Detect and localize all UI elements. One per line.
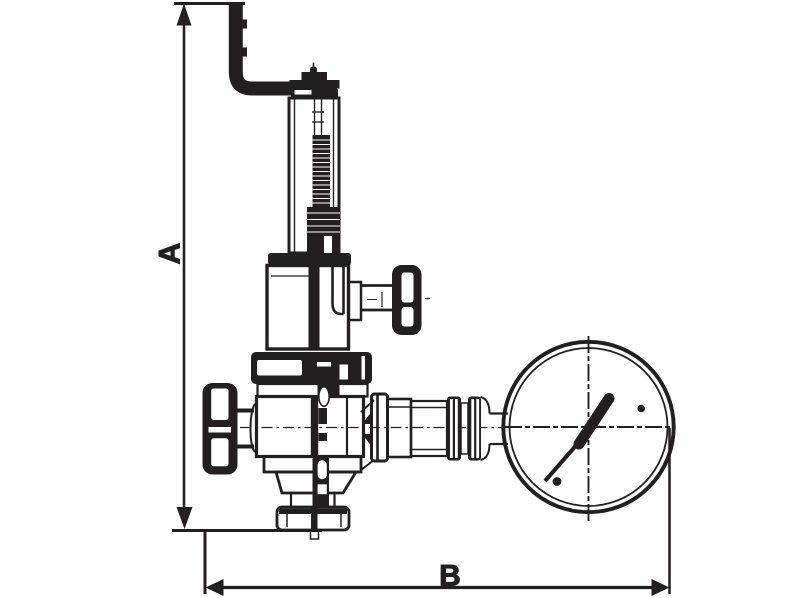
svg-text:A: A xyxy=(154,243,187,265)
svg-text:B: B xyxy=(439,560,461,593)
